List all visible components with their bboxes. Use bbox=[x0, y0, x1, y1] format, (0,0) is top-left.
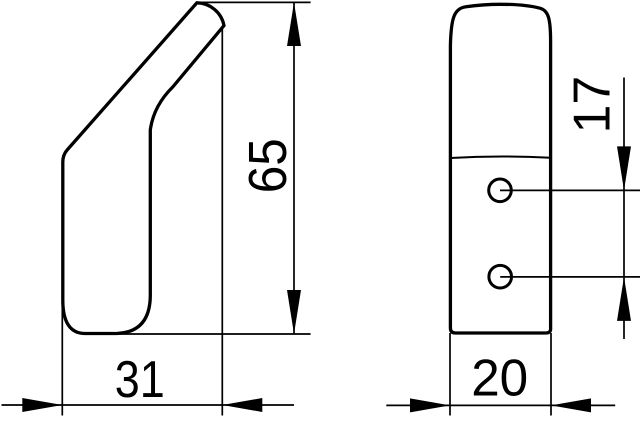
svg-text:17: 17 bbox=[564, 76, 622, 134]
svg-text:31: 31 bbox=[115, 351, 165, 409]
svg-text:65: 65 bbox=[238, 138, 298, 193]
svg-text:20: 20 bbox=[471, 350, 528, 408]
